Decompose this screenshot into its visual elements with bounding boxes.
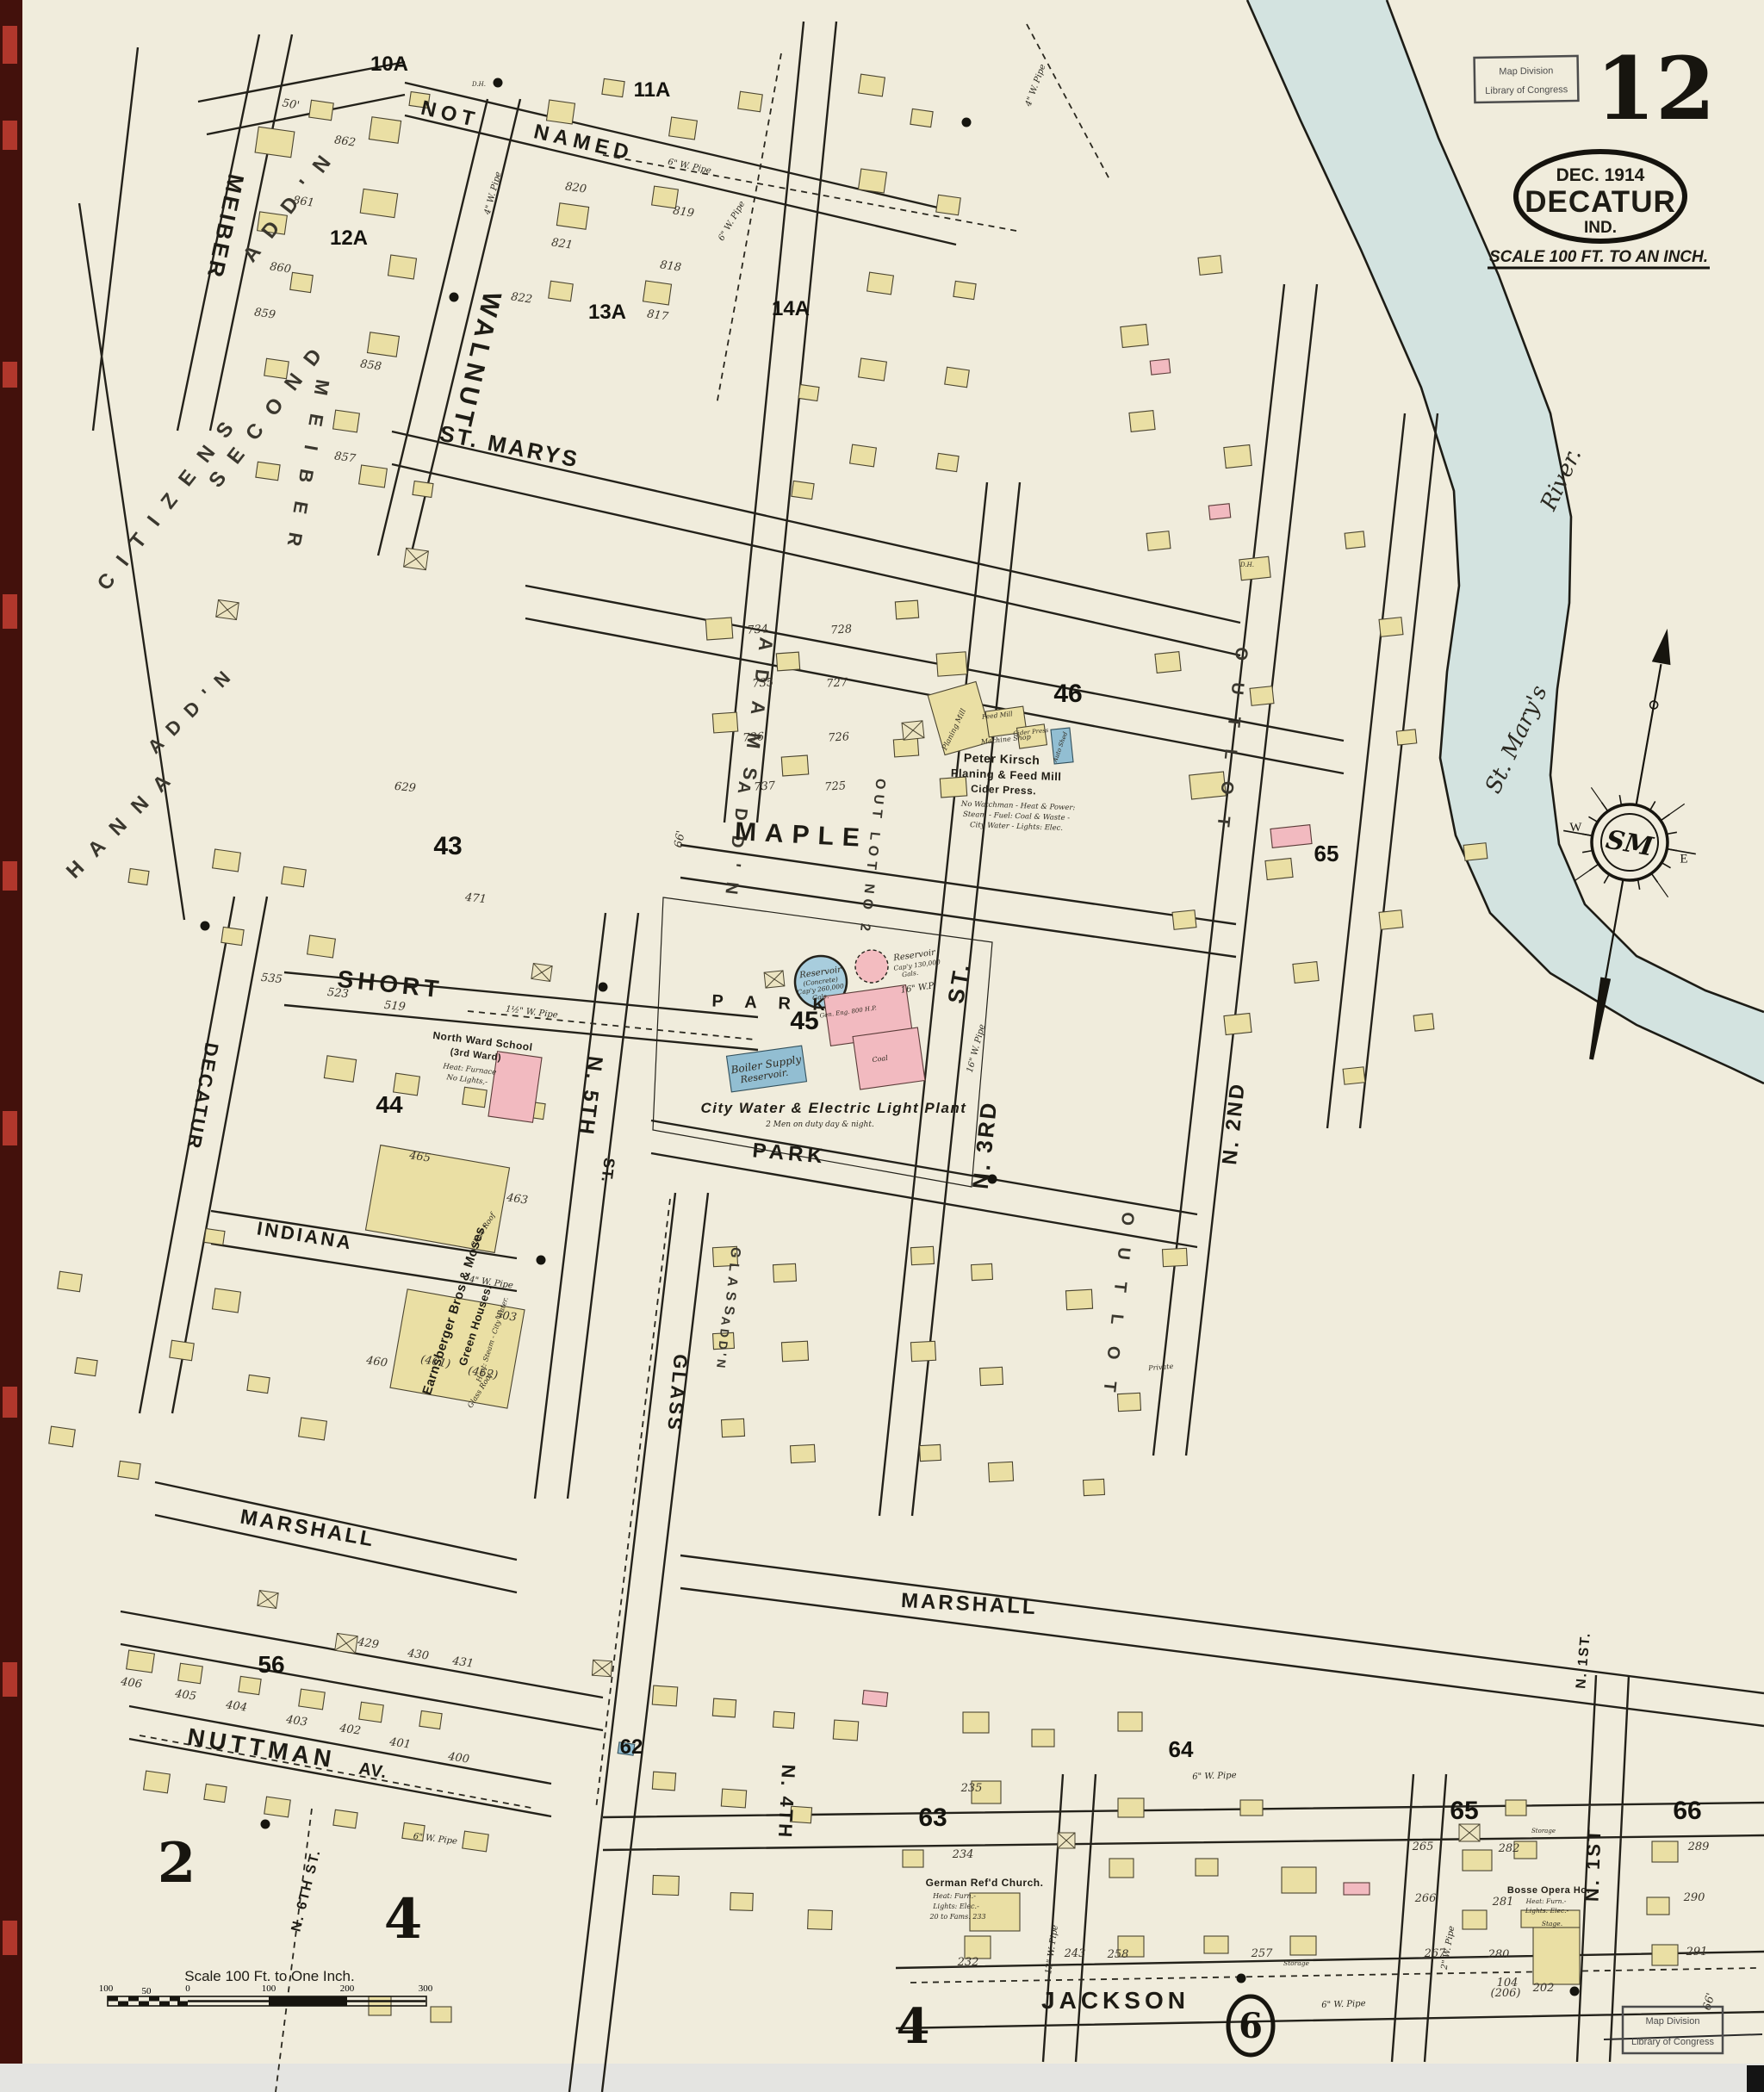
building [936, 453, 959, 471]
lot-number: (206) [1491, 1987, 1521, 2000]
block-number: 43 [433, 832, 462, 860]
building [850, 444, 877, 467]
building [1652, 1841, 1678, 1862]
building [712, 712, 737, 733]
block-number: 65 [1314, 841, 1339, 866]
building [1162, 1248, 1187, 1266]
block-number: 13A [588, 301, 626, 324]
building [972, 1263, 993, 1280]
building [1652, 1945, 1678, 1965]
building [1155, 652, 1181, 674]
block-number: 64 [1169, 1736, 1194, 1762]
building [895, 600, 918, 619]
scale-bar-label: Scale 100 Ft. to One Inch. [184, 1968, 355, 1984]
double-hydrant-dot [599, 983, 608, 992]
lot-number: 289 [1687, 1841, 1710, 1853]
double-hydrant-dot [1570, 1987, 1580, 1996]
building [920, 1444, 941, 1461]
building [369, 117, 401, 143]
district-number: 4 [384, 1887, 423, 1952]
building [255, 127, 295, 158]
lot-number: 629 [394, 780, 416, 796]
building [764, 971, 785, 988]
building [1129, 411, 1155, 432]
building [1146, 531, 1171, 551]
building [945, 367, 970, 387]
double-hydrant-dot [450, 293, 459, 302]
building [413, 481, 433, 498]
compass-east: E [1680, 852, 1687, 866]
stamp-line1: Map Division [1646, 2016, 1700, 2027]
building [1459, 1824, 1480, 1841]
sheet-number: 12 [1595, 38, 1715, 140]
double-hydrant-dot [1237, 1974, 1246, 1983]
building [118, 1461, 140, 1479]
building [178, 1663, 203, 1683]
building [808, 1910, 833, 1930]
lot-number: 725 [824, 779, 847, 794]
lot-number: 736 [742, 730, 765, 745]
building [419, 1710, 442, 1729]
building [335, 1633, 358, 1653]
building [592, 1660, 612, 1676]
lot-number: 523 [326, 986, 349, 1002]
building [893, 738, 918, 757]
block-number: 66 [1673, 1797, 1701, 1825]
building [256, 462, 280, 480]
building [360, 189, 398, 217]
building [1196, 1859, 1218, 1876]
landmark-label: 2 Men on duty day & night. [765, 1120, 874, 1129]
street-label: N. 4TH [774, 1764, 800, 1841]
building [1065, 1289, 1092, 1310]
building [290, 272, 314, 292]
district-number: 6 [1239, 2006, 1263, 2046]
building [652, 1685, 677, 1706]
landmark-label: D.H. [1239, 562, 1254, 568]
building [359, 465, 388, 487]
landmark-label: Storage [1283, 1959, 1310, 1967]
landmark-label: Storage [1531, 1828, 1556, 1834]
building [463, 1087, 488, 1107]
lot-number: 290 [1683, 1891, 1705, 1904]
building [1150, 359, 1171, 375]
building [643, 281, 671, 305]
building [970, 1893, 1020, 1931]
building [216, 599, 239, 619]
double-hydrant-dot [537, 1256, 546, 1265]
double-hydrant-dot [201, 922, 210, 931]
building [333, 410, 360, 432]
double-hydrant-dot [962, 118, 972, 127]
building [212, 1288, 240, 1313]
building [1344, 1883, 1370, 1895]
building [859, 74, 885, 96]
landmark-label: Heat: Furn.- [1525, 1897, 1567, 1905]
building [204, 1784, 227, 1802]
stamp-line2: Library of Congress [1485, 84, 1568, 96]
lot-number: 519 [383, 999, 406, 1015]
building [910, 109, 933, 127]
stamp-line2: Library of Congress [1631, 2037, 1714, 2047]
building [127, 1650, 155, 1673]
building [1204, 1936, 1228, 1953]
title-city: DECATUR [1525, 185, 1676, 219]
building [404, 548, 429, 569]
building [264, 1797, 291, 1817]
building [431, 2007, 451, 2022]
building [1118, 1798, 1144, 1817]
building [1533, 1924, 1580, 1984]
building [1250, 686, 1274, 706]
building [1208, 504, 1231, 519]
landmark-label: German Ref'd Church. [926, 1877, 1044, 1889]
scan-corner [1747, 2065, 1764, 2092]
building [58, 1271, 83, 1291]
building [940, 777, 966, 798]
scanned-map-page: St. Mary's River. C I T I Z E N SS E C O… [0, 0, 1764, 2092]
building [128, 869, 149, 885]
building [307, 935, 336, 958]
building [1413, 1014, 1434, 1031]
double-hydrant-dot [494, 78, 503, 88]
building [669, 117, 698, 140]
pipe-label: 6" W. Pipe [1321, 1999, 1366, 2010]
building [1290, 1936, 1316, 1955]
landmark-label: City Water & Electric Light Plant [701, 1100, 967, 1116]
block-number: 14A [772, 297, 810, 320]
building [299, 1689, 326, 1710]
compass-west: W [1569, 821, 1582, 835]
building [1058, 1833, 1075, 1848]
building [359, 1702, 384, 1722]
street-label: JACKSON [1041, 1987, 1189, 2014]
building [1463, 1910, 1487, 1929]
lot-number: 266 [1414, 1892, 1437, 1905]
building [721, 1789, 746, 1808]
building [1239, 556, 1270, 580]
building [239, 1676, 261, 1694]
building [309, 100, 334, 120]
landmark-label: Heat: Furn.- [932, 1892, 976, 1900]
building [652, 1772, 675, 1791]
building [247, 1375, 270, 1393]
block-number: 45 [790, 1007, 818, 1035]
lot-number: 471 [463, 891, 487, 907]
binding-edge [0, 0, 22, 2064]
building [1293, 962, 1319, 984]
scale-tick: 100 [262, 1983, 276, 1994]
building [546, 100, 575, 124]
building [705, 618, 733, 640]
lot-number: 282 [1498, 1842, 1520, 1855]
building [221, 927, 244, 945]
building [1198, 256, 1222, 276]
scan-bed [0, 2064, 1764, 2092]
building [170, 1340, 195, 1360]
building [1270, 825, 1312, 848]
lot-number: 281 [1492, 1896, 1514, 1909]
lot-number: 265 [1412, 1841, 1434, 1853]
building [1396, 729, 1417, 745]
landmark-label: 20 to Fams. 233 [929, 1913, 985, 1921]
building [936, 652, 967, 676]
building [910, 1341, 935, 1361]
building [549, 281, 574, 301]
building [1463, 1850, 1492, 1871]
lot-number: 727 [826, 676, 849, 691]
building [773, 1263, 796, 1282]
landmark-label: Lights: Elec.- [932, 1903, 979, 1910]
building [1032, 1729, 1054, 1747]
lot-number: 243 [1064, 1947, 1086, 1960]
building [49, 1426, 76, 1447]
building [1224, 1013, 1252, 1034]
street-label: ST. [598, 1157, 618, 1183]
lot-number: 235 [960, 1782, 983, 1795]
building [859, 358, 887, 381]
double-hydrant-dot [261, 1820, 270, 1829]
lot-number: 726 [828, 730, 850, 745]
building [258, 1591, 278, 1609]
building [862, 1691, 888, 1707]
building [1506, 1800, 1526, 1816]
lot-number: 202 [1532, 1982, 1555, 1995]
building [556, 203, 588, 229]
building [463, 1831, 489, 1852]
building [776, 652, 799, 671]
building [730, 1893, 754, 1911]
building [1282, 1867, 1316, 1893]
block-number: 12A [330, 227, 368, 250]
building [1224, 444, 1252, 468]
block-number: 62 [620, 1735, 643, 1759]
block-number: 11A [634, 78, 671, 102]
lot-number: 734 [747, 623, 769, 637]
landmark-label: Peter Kirsch [964, 750, 1040, 767]
pipe-label: 6" W. Pipe [1192, 1771, 1237, 1782]
building [833, 1720, 858, 1741]
building [867, 272, 894, 295]
block-number: 63 [918, 1803, 947, 1832]
building [204, 1229, 225, 1245]
building [75, 1357, 97, 1375]
building [1084, 1479, 1105, 1495]
scale-tick: 100 [99, 1983, 114, 1994]
building [1647, 1897, 1669, 1915]
lot-number: 280 [1488, 1948, 1510, 1961]
building [1117, 1393, 1140, 1411]
building [1109, 1859, 1134, 1878]
landmark-label: Stage. [1542, 1920, 1562, 1927]
building [910, 1246, 934, 1264]
building [333, 1810, 357, 1828]
building [858, 169, 886, 193]
building [653, 1875, 680, 1895]
block-number: 46 [1053, 680, 1082, 708]
building [1379, 618, 1403, 637]
building [531, 964, 552, 982]
building [1121, 324, 1148, 347]
landmark-label: Bosse Opera Ho. [1507, 1885, 1590, 1896]
title-date: DEC. 1914 [1556, 165, 1645, 185]
landmark-label: Lights: Elec.- [1525, 1907, 1569, 1915]
district-number: 2 [158, 1831, 196, 1896]
lot-number: 258 [1107, 1948, 1129, 1961]
building [712, 1698, 736, 1717]
lot-number: 728 [830, 623, 853, 637]
stamp-line1: Map Division [1499, 65, 1553, 77]
block-number: 65 [1450, 1797, 1478, 1825]
block-number: 56 [258, 1651, 284, 1678]
building [282, 866, 307, 886]
landmark-label: Cider Press. [971, 783, 1036, 798]
building [1265, 858, 1293, 879]
building [1345, 531, 1365, 549]
district-number: 4 [897, 1998, 930, 2055]
building [781, 1341, 808, 1362]
scale-tick: 300 [419, 1983, 433, 1994]
building [963, 1712, 989, 1733]
lot-number: 234 [952, 1848, 974, 1861]
title-state: IND. [1584, 219, 1617, 237]
building [721, 1418, 744, 1437]
lot-number: 737 [754, 779, 777, 794]
building [1463, 843, 1488, 861]
building [1379, 910, 1403, 930]
building [299, 1418, 327, 1440]
building [902, 721, 924, 740]
title-scale: SCALE 100 FT. TO AN INCH. [1489, 248, 1708, 266]
building [602, 78, 624, 96]
building [988, 1462, 1013, 1481]
scale-tick: 50 [142, 1986, 152, 1996]
building [790, 1444, 815, 1462]
building [738, 91, 763, 111]
building [979, 1367, 1003, 1385]
building [792, 481, 814, 499]
block-number: 10A [370, 53, 408, 76]
scale-tick: 200 [340, 1983, 355, 1994]
building [1172, 910, 1196, 930]
building [773, 1711, 794, 1729]
building [1240, 1800, 1263, 1816]
building [144, 1771, 171, 1793]
building [1118, 1712, 1142, 1731]
sanborn-map-sheet: St. Mary's River. C I T I Z E N SS E C O… [0, 0, 1764, 2092]
lot-number: 535 [260, 972, 283, 987]
lot-number: 257 [1251, 1947, 1274, 1960]
building [853, 1027, 925, 1089]
lot-number: 735 [752, 676, 774, 691]
lot-number: 232 [957, 1956, 979, 1969]
building [798, 385, 819, 401]
building [781, 755, 808, 776]
building [213, 849, 241, 872]
building [953, 281, 976, 299]
lot-number: 291 [1686, 1946, 1708, 1959]
reservoir [855, 950, 888, 983]
building [324, 1056, 356, 1082]
building [1343, 1067, 1365, 1084]
building [388, 255, 416, 279]
block-number: 44 [376, 1091, 403, 1118]
landmark-label: D.H. [471, 81, 486, 88]
building [367, 332, 399, 357]
building [936, 195, 961, 214]
building [903, 1850, 923, 1867]
scale-tick: 0 [185, 1983, 190, 1994]
